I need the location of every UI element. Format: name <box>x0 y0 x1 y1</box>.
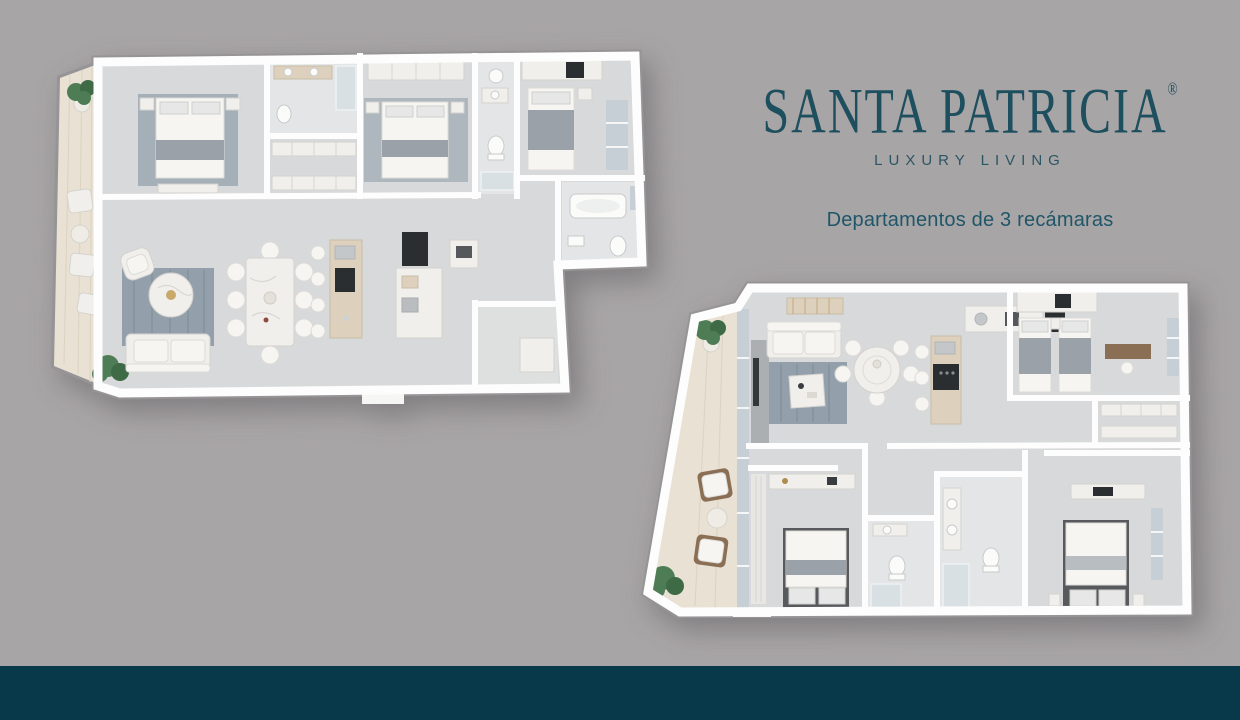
nightstand <box>1049 594 1060 606</box>
desk-chair <box>1121 362 1133 374</box>
dining-table <box>854 347 900 393</box>
toilet <box>488 136 504 156</box>
bar-stool <box>915 345 929 359</box>
tv <box>1055 294 1071 308</box>
nightstand <box>1051 318 1060 329</box>
toilet <box>983 548 999 568</box>
media-wall <box>751 340 769 444</box>
closet <box>522 60 602 80</box>
dining-chair <box>295 319 313 337</box>
floorplan-left-image <box>30 48 650 408</box>
dresser <box>158 184 218 193</box>
door <box>520 338 554 372</box>
wall-cabinet <box>450 240 478 268</box>
nightstand <box>366 102 379 113</box>
bar-stool <box>915 371 929 385</box>
side-table <box>707 508 727 528</box>
bar-stool <box>311 298 325 312</box>
kitchen-island <box>330 240 362 338</box>
twin-bed <box>528 88 574 170</box>
dining-chair <box>227 263 245 281</box>
sliding-glass-doors <box>737 309 749 609</box>
subtitle: Departamentos de 3 recámaras <box>720 209 1220 232</box>
double-bed <box>1063 520 1129 610</box>
bar-stool <box>915 397 929 411</box>
dining-chair <box>295 263 313 281</box>
brand-name-text: SANTA PATRICIA <box>762 76 1167 147</box>
twin-bed <box>1019 318 1051 392</box>
nightstand <box>578 88 592 100</box>
dining-chair <box>227 319 245 337</box>
twin-bed <box>1059 318 1091 392</box>
nightstand <box>451 102 464 113</box>
bar-stool <box>311 324 325 338</box>
wardrobe <box>751 474 766 604</box>
shower <box>336 66 356 110</box>
toilet <box>889 556 905 576</box>
shower <box>943 564 969 608</box>
bar-stool <box>311 272 325 286</box>
nightstand <box>226 98 240 110</box>
registered-mark-icon: ® <box>1168 79 1178 99</box>
coffee-table <box>789 374 825 408</box>
ceiling-wood-panel <box>787 298 843 314</box>
bar-stool <box>311 246 325 260</box>
brand-lockup: SANTA PATRICIA® LUXURY LIVING Departamen… <box>720 80 1220 232</box>
window <box>1151 508 1163 580</box>
dining-table <box>246 258 294 346</box>
nightstand <box>1133 594 1144 606</box>
tv <box>753 358 759 406</box>
kitchen-island <box>931 336 961 424</box>
tv <box>1093 487 1113 496</box>
bedroom-2 <box>364 60 468 182</box>
dining-chair <box>845 340 861 356</box>
shower <box>481 172 514 190</box>
floorplan-right-image <box>635 278 1195 618</box>
double-bed <box>382 102 448 178</box>
coffee-table <box>149 273 193 317</box>
dining-chair <box>227 291 245 309</box>
nightstand <box>140 98 154 110</box>
toilet <box>277 105 291 123</box>
vanity <box>943 488 961 550</box>
window-door <box>606 100 628 170</box>
sofa <box>767 322 841 358</box>
double-bed <box>156 98 224 178</box>
dining-chair <box>261 346 279 364</box>
shower <box>871 584 901 608</box>
flyer-canvas: SANTA PATRICIA® LUXURY LIVING Departamen… <box>0 0 1240 720</box>
mirror <box>489 69 503 83</box>
tv <box>566 62 584 78</box>
laundry-room <box>520 338 554 372</box>
kitchen-counter <box>396 268 442 338</box>
sofa <box>126 334 210 372</box>
toilet <box>610 236 626 256</box>
dining-chair <box>835 366 851 382</box>
footer-bar <box>0 666 1240 720</box>
brand-name: SANTA PATRICIA® <box>720 80 1220 128</box>
sink <box>568 236 584 246</box>
refrigerator <box>402 232 428 266</box>
floating-console <box>769 474 855 489</box>
dining-chair <box>261 242 279 260</box>
double-bed <box>783 528 849 610</box>
dining-chair <box>295 291 313 309</box>
dining-chair <box>893 340 909 356</box>
brand-tagline: LUXURY LIVING <box>720 152 1220 169</box>
window-door <box>1167 318 1179 376</box>
bedroom-1 <box>138 94 240 193</box>
